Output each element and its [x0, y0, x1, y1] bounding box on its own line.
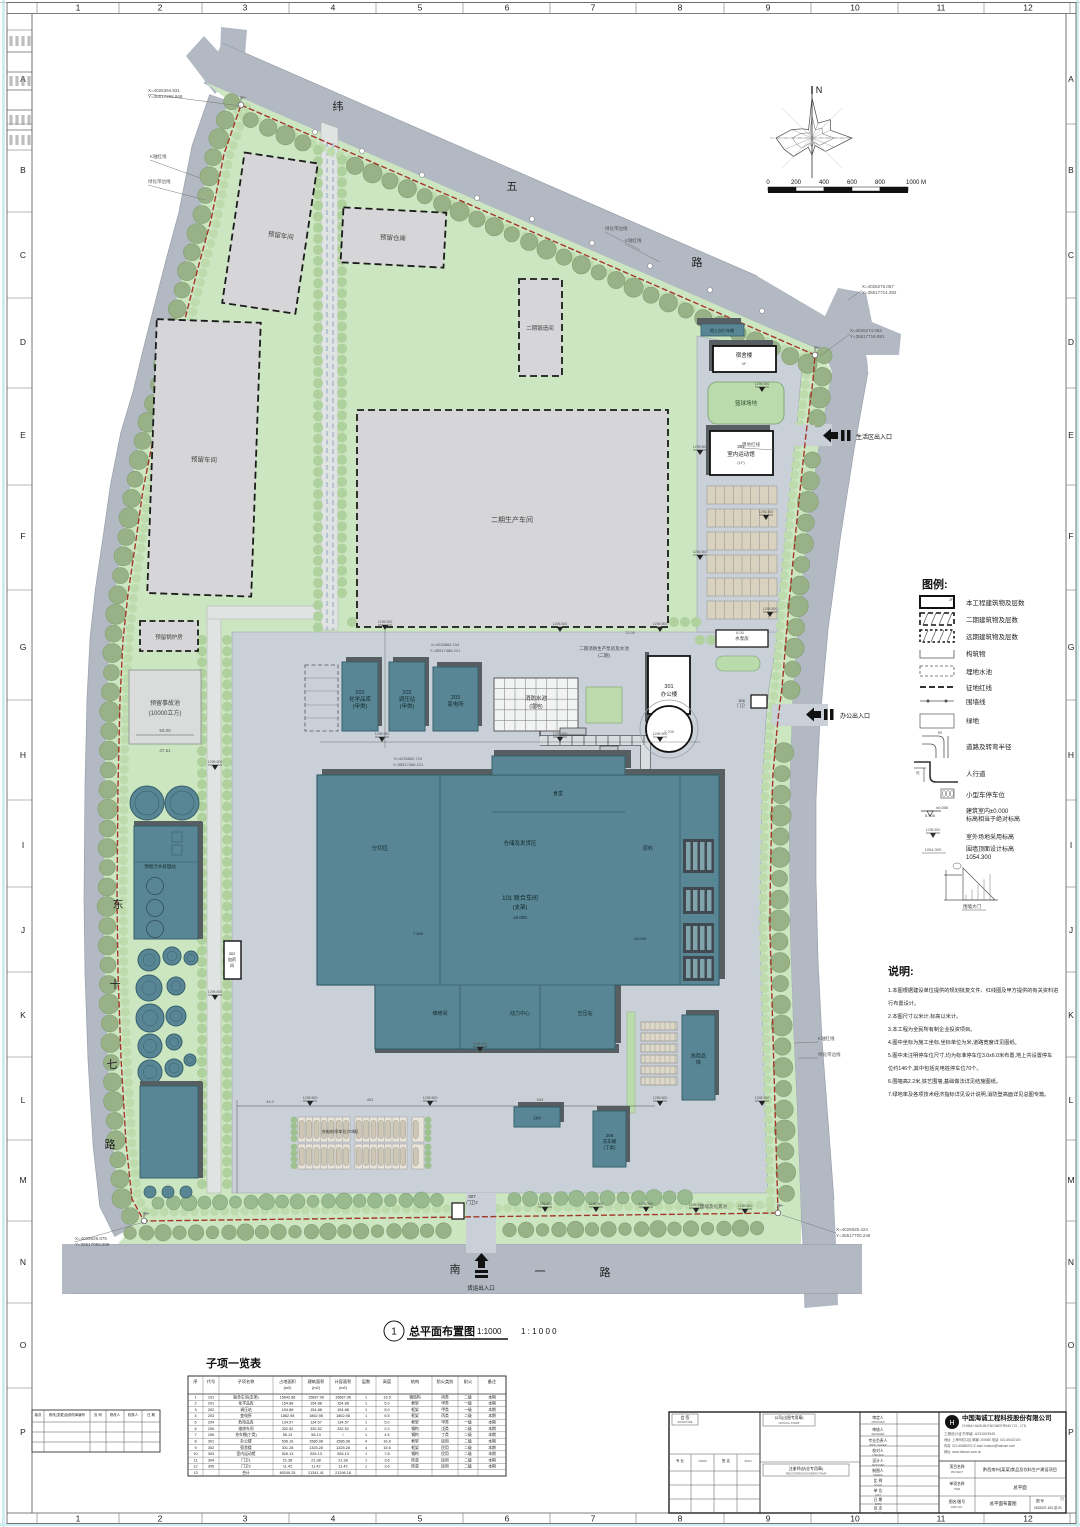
svg-text:403: 403 — [367, 1097, 374, 1102]
svg-text:制图人: 制图人 — [872, 1468, 884, 1473]
svg-text:101: 101 — [208, 1395, 214, 1399]
svg-text:备注: 备注 — [488, 1378, 497, 1385]
svg-text:总平面: 总平面 — [1013, 1484, 1027, 1491]
svg-text:134.57: 134.57 — [282, 1421, 294, 1425]
svg-text:调压站: 调压站 — [399, 695, 416, 703]
svg-text:日 期: 日 期 — [147, 1412, 155, 1417]
svg-text:B: B — [1068, 165, 1074, 175]
svg-text:(甲类): (甲类) — [400, 702, 415, 710]
svg-text:302: 302 — [208, 1446, 214, 1450]
svg-text:3.本工程为全民所有制企业投资项目。: 3.本工程为全民所有制企业投资项目。 — [888, 1025, 975, 1033]
svg-text:二期锻造间: 二期锻造间 — [526, 324, 554, 332]
svg-text:D: D — [20, 337, 26, 347]
svg-text:食堂: 食堂 — [553, 790, 563, 797]
svg-text:二级: 二级 — [464, 1464, 472, 1469]
svg-text:框架: 框架 — [411, 1413, 419, 1418]
svg-text:1295.500: 1295.500 — [538, 1202, 553, 1206]
svg-text:1295.500: 1295.500 — [693, 550, 708, 554]
svg-text:维修间: 维修间 — [432, 1010, 447, 1017]
svg-text:砖混: 砖混 — [411, 1464, 419, 1469]
svg-text:K: K — [1068, 1010, 1074, 1020]
svg-text:1: 1 — [365, 1452, 367, 1456]
svg-text:一级: 一级 — [464, 1401, 472, 1406]
svg-text:(埋地): (埋地) — [529, 703, 543, 710]
svg-text:8: 8 — [678, 1514, 683, 1524]
svg-text:4: 4 — [365, 1446, 367, 1450]
svg-text:21.38: 21.38 — [338, 1458, 348, 1462]
svg-text:1: 1 — [76, 3, 81, 13]
svg-text:1295.500: 1295.500 — [926, 828, 941, 832]
svg-text:路: 路 — [692, 256, 703, 269]
svg-text:7: 7 — [591, 3, 596, 13]
svg-text:戊类: 戊类 — [441, 1426, 449, 1431]
svg-text:合计: 合计 — [242, 1470, 250, 1475]
svg-text:(丁类): (丁类) — [604, 1144, 616, 1151]
svg-text:说明:: 说明: — [888, 964, 914, 978]
svg-text:调压站: 调压站 — [240, 1407, 252, 1412]
svg-text:审核人: 审核人 — [872, 1427, 884, 1432]
svg-text:地上自行车棚: 地上自行车棚 — [710, 327, 734, 333]
svg-text:12.000: 12.000 — [634, 936, 647, 941]
svg-text:原料: 原料 — [643, 845, 653, 852]
svg-text:预留锅炉房: 预留锅炉房 — [155, 633, 183, 641]
svg-text:J: J — [21, 925, 25, 935]
svg-text:1: 1 — [76, 1514, 81, 1524]
svg-text:维修车间: 维修车间 — [238, 1426, 253, 1431]
svg-text:1000 M: 1000 M — [906, 180, 926, 186]
svg-text:计容面积: 计容面积 — [335, 1378, 352, 1385]
svg-text:D: D — [1068, 337, 1074, 347]
svg-text:二级: 二级 — [464, 1394, 472, 1399]
svg-text:充车棚: 充车棚 — [603, 1138, 617, 1145]
svg-text:生活区出入口: 生活区出入口 — [856, 433, 892, 441]
svg-text:1295.500: 1295.500 — [759, 510, 774, 514]
svg-text:办公楼: 办公楼 — [240, 1438, 252, 1443]
svg-text:本期: 本期 — [488, 1438, 496, 1443]
svg-text:332.52: 332.52 — [310, 1427, 322, 1431]
svg-text:4: 4 — [331, 3, 336, 13]
svg-text:5: 5 — [194, 1421, 196, 1425]
svg-text:围墙顶面设计标高: 围墙顶面设计标高 — [966, 845, 1014, 853]
svg-text:534: 534 — [537, 1097, 544, 1102]
svg-text:1:1000: 1:1000 — [477, 1327, 502, 1336]
svg-text:Y=35517700.248: Y=35517700.248 — [836, 1233, 871, 1238]
svg-text:11.42: 11.42 — [338, 1465, 347, 1469]
svg-text:O: O — [20, 1340, 27, 1350]
svg-text:1: 1 — [365, 1408, 367, 1412]
svg-text:21298.18: 21298.18 — [335, 1471, 351, 1475]
svg-text:I: I — [1070, 840, 1072, 850]
svg-text:1: 1 — [365, 1465, 367, 1469]
svg-text:F: F — [1068, 531, 1073, 541]
svg-text:二级: 二级 — [464, 1445, 472, 1450]
svg-text:本期: 本期 — [488, 1401, 496, 1406]
svg-text:1: 1 — [365, 1433, 367, 1437]
svg-text:L: L — [21, 1095, 26, 1105]
svg-text:钢构: 钢构 — [411, 1426, 419, 1431]
svg-text:二级: 二级 — [464, 1451, 472, 1456]
svg-text:P: P — [20, 1427, 26, 1437]
svg-text:化学品库: 化学品库 — [349, 695, 372, 703]
svg-text:设计人: 设计人 — [872, 1458, 884, 1463]
svg-text:4: 4 — [331, 1514, 336, 1524]
svg-text:134.57: 134.57 — [310, 1421, 322, 1425]
svg-text:80249.25: 80249.25 — [280, 1471, 296, 1475]
svg-text:钢构: 钢构 — [411, 1432, 419, 1437]
svg-text:二级: 二级 — [464, 1438, 472, 1443]
svg-text:1295.500: 1295.500 — [738, 1204, 753, 1208]
svg-text:M: M — [1067, 1175, 1074, 1185]
svg-text:纬: 纬 — [333, 100, 344, 113]
svg-text:1: 1 — [194, 1395, 196, 1399]
svg-text:子项名称: 子项名称 — [238, 1378, 255, 1385]
svg-text:工程设计证书甲级: A231003949: 工程设计证书甲级: A231003949 — [944, 1431, 995, 1436]
svg-text:1295.500: 1295.500 — [473, 1042, 488, 1046]
svg-text:二期消防生产泵房及水池: 二期消防生产泵房及水池 — [579, 645, 629, 652]
svg-text:154.88: 154.88 — [282, 1402, 294, 1406]
svg-text:8: 8 — [678, 3, 683, 13]
svg-text:101 联合车间: 101 联合车间 — [502, 894, 538, 902]
svg-text:5: 5 — [418, 1514, 423, 1524]
svg-text:P: P — [1068, 1427, 1074, 1437]
svg-text:注册师(执业专用章): 注册师(执业专用章) — [789, 1465, 824, 1471]
svg-text:修改人: 修改人 — [110, 1412, 121, 1417]
svg-text:CHECKED: CHECKED — [872, 1454, 884, 1457]
svg-text:征地红线: 征地红线 — [966, 683, 993, 692]
svg-text:占地面积: 占地面积 — [279, 1378, 296, 1385]
svg-text:2: 2 — [158, 1514, 163, 1524]
svg-text:2: 2 — [194, 1402, 196, 1406]
svg-text:6.围墙高2.2米,铁艺围墙,基础做法详见结施图纸。: 6.围墙高2.2米,铁艺围墙,基础做法详见结施图纸。 — [888, 1077, 1001, 1085]
svg-text:1295.500: 1295.500 — [653, 622, 668, 626]
svg-text:7.8: 7.8 — [384, 1452, 389, 1456]
svg-text:56.13: 56.13 — [283, 1433, 293, 1437]
svg-text:332.52: 332.52 — [337, 1427, 349, 1431]
svg-text:B: B — [20, 165, 26, 175]
svg-text:X=4026274.052: X=4026274.052 — [850, 328, 882, 333]
svg-text:6.5: 6.5 — [384, 1414, 389, 1418]
svg-text:72.00: 72.00 — [625, 630, 636, 635]
svg-text:154.88: 154.88 — [337, 1402, 349, 1406]
svg-text:公司(出图专用章): 公司(出图专用章) — [774, 1415, 804, 1420]
svg-text:CHINA HAISUM ENGINEERING CO.,: CHINA HAISUM ENGINEERING CO., LTD. — [962, 1424, 1027, 1428]
svg-text:防火类别: 防火类别 — [437, 1378, 454, 1385]
svg-text:围墙线: 围墙线 — [966, 697, 986, 706]
svg-text:301: 301 — [208, 1439, 214, 1443]
svg-text:204: 204 — [208, 1421, 214, 1425]
svg-text:1295.500: 1295.500 — [639, 1202, 654, 1206]
svg-text:11: 11 — [937, 1514, 946, 1524]
svg-text:8: 8 — [194, 1439, 196, 1443]
svg-text:1 : 1 0 0 0: 1 : 1 0 0 0 — [521, 1327, 557, 1336]
svg-text:办公楼: 办公楼 — [661, 690, 678, 698]
svg-text:15642.86: 15642.86 — [280, 1395, 296, 1399]
svg-text:危险品: 危险品 — [691, 1053, 706, 1060]
svg-text:L: L — [1069, 1095, 1074, 1105]
svg-text:4.5: 4.5 — [384, 1433, 389, 1437]
svg-text:(m2): (m2) — [339, 1386, 348, 1390]
svg-text:民用: 民用 — [441, 1457, 449, 1462]
svg-text:G: G — [20, 642, 27, 652]
svg-text:X=4026276.057: X=4026276.057 — [862, 284, 894, 289]
svg-text:206: 206 — [208, 1433, 214, 1437]
svg-text:加药: 加药 — [228, 956, 236, 962]
svg-text:3.6: 3.6 — [384, 1465, 389, 1469]
svg-text:A: A — [1068, 74, 1074, 84]
svg-text:间: 间 — [230, 962, 234, 968]
svg-text:K轴红线: K轴红线 — [625, 237, 642, 244]
svg-text:中国海诚工程科技股份有限公司: 中国海诚工程科技股份有限公司 — [962, 1413, 1051, 1422]
svg-text:预留污水处理站: 预留污水处理站 — [144, 863, 176, 870]
svg-text:4: 4 — [194, 1414, 196, 1418]
svg-text:预留事故池: 预留事故池 — [150, 699, 180, 707]
svg-text:本期: 本期 — [488, 1457, 496, 1462]
svg-text:(m2): (m2) — [312, 1386, 321, 1390]
svg-text:位约146个,其中包括充电桩停车位70个。: 位约146个,其中包括充电桩停车位70个。 — [888, 1064, 982, 1072]
svg-text:框架: 框架 — [411, 1420, 419, 1425]
svg-text:4.图中坐标为施工坐标,坐标单位为米,道路宽度详见图纸。: 4.图中坐标为施工坐标,坐标单位为米,道路宽度详见图纸。 — [888, 1038, 1020, 1046]
svg-text:消防水池: 消防水池 — [525, 694, 548, 702]
svg-text:10: 10 — [850, 3, 860, 13]
svg-text:专 业: 专 业 — [676, 1458, 685, 1463]
svg-text:日 期: 日 期 — [874, 1497, 883, 1502]
svg-text:5.0: 5.0 — [384, 1402, 389, 1406]
svg-text:一级: 一级 — [464, 1420, 472, 1425]
svg-text:1: 1 — [391, 1327, 397, 1338]
svg-text:1295.500: 1295.500 — [653, 732, 668, 736]
svg-text:会 签: 会 签 — [680, 1414, 689, 1420]
svg-text:I: I — [22, 840, 24, 850]
svg-text:N: N — [1068, 1257, 1074, 1267]
svg-text:本期: 本期 — [488, 1413, 496, 1418]
svg-text:民用: 民用 — [441, 1464, 449, 1469]
svg-text:154.88: 154.88 — [310, 1408, 322, 1412]
svg-text:框架: 框架 — [411, 1445, 419, 1450]
svg-text:甲类: 甲类 — [441, 1401, 449, 1406]
svg-text:五: 五 — [507, 181, 518, 193]
svg-text:1295.500: 1295.500 — [303, 1096, 318, 1100]
svg-text:货运出入口: 货运出入口 — [467, 1284, 495, 1292]
svg-text:校核人: 校核人 — [128, 1412, 139, 1417]
svg-text:E: E — [1068, 430, 1074, 440]
svg-text:X=4025625.424: X=4025625.424 — [836, 1227, 868, 1232]
svg-text:400: 400 — [819, 180, 830, 186]
svg-text:15687.06: 15687.06 — [335, 1395, 351, 1399]
svg-text:构筑物: 构筑物 — [966, 649, 986, 658]
svg-text:11: 11 — [194, 1458, 198, 1462]
svg-text:二期生产车间: 二期生产车间 — [491, 515, 533, 524]
svg-text:二级: 二级 — [464, 1413, 472, 1418]
svg-text:1586.98: 1586.98 — [336, 1439, 350, 1443]
svg-text:Y=35517050.208: Y=35517050.208 — [75, 1242, 110, 1247]
svg-text:结构: 结构 — [411, 1378, 419, 1385]
svg-text:93.00: 93.00 — [159, 728, 171, 733]
svg-text:签 名: 签 名 — [722, 1458, 731, 1463]
svg-text:12: 12 — [1023, 1514, 1033, 1524]
svg-text:1325.28: 1325.28 — [309, 1446, 323, 1450]
svg-text:丙类: 丙类 — [441, 1394, 449, 1399]
svg-text:人行道: 人行道 — [966, 769, 986, 778]
svg-text:专业负责人: 专业负责人 — [869, 1438, 888, 1443]
svg-text:本期: 本期 — [488, 1420, 496, 1425]
svg-text:E: E — [20, 430, 26, 440]
svg-text:11.42: 11.42 — [311, 1465, 320, 1469]
svg-text:7.绿地率及各项技术经济指标详见设计说明,消防登高面详见总图: 7.绿地率及各项技术经济指标详见设计说明,消防登高面详见总图专篇。 — [888, 1090, 1049, 1098]
svg-text:Y=35517466.221: Y=35517466.221 — [393, 762, 424, 767]
svg-text:13: 13 — [193, 1471, 197, 1475]
svg-text:1295.500: 1295.500 — [589, 1202, 604, 1206]
svg-text:H: H — [1068, 750, 1074, 760]
svg-text:15687.06: 15687.06 — [308, 1395, 324, 1399]
svg-text:9: 9 — [766, 1514, 771, 1524]
svg-text:动力中心: 动力中心 — [510, 1010, 530, 1017]
svg-text:水泵房: 水泵房 — [735, 635, 749, 642]
svg-text:网址: www.haisum.com.cn: 网址: www.haisum.com.cn — [944, 1449, 981, 1454]
svg-text:201: 201 — [208, 1402, 214, 1406]
svg-text:J: J — [1069, 925, 1073, 935]
svg-text:宿舍楼: 宿舍楼 — [736, 351, 753, 359]
svg-text:X=4025628.875: X=4025628.875 — [75, 1236, 107, 1241]
svg-text:框架: 框架 — [411, 1407, 419, 1412]
svg-text:M: M — [19, 1175, 26, 1185]
svg-text:6: 6 — [194, 1427, 196, 1431]
svg-text:1295.500: 1295.500 — [755, 382, 770, 386]
svg-text:11.42: 11.42 — [283, 1465, 292, 1469]
svg-text:SIGN: SIGN — [744, 1459, 751, 1463]
svg-text:44.0: 44.0 — [266, 1099, 275, 1104]
svg-text:校对人: 校对人 — [872, 1448, 884, 1453]
svg-text:行布置设计。: 行布置设计。 — [888, 999, 919, 1007]
svg-text:205: 205 — [208, 1427, 214, 1431]
svg-text:305: 305 — [208, 1465, 214, 1469]
svg-text:门卫1: 门卫1 — [241, 1457, 251, 1462]
svg-text:室内运动馆: 室内运动馆 — [727, 450, 755, 458]
svg-text:2F: 2F — [949, 598, 953, 602]
svg-text:本期: 本期 — [488, 1426, 496, 1431]
svg-text:民用: 民用 — [441, 1451, 449, 1456]
svg-text:总平面布置图: 总平面布置图 — [409, 1324, 475, 1338]
svg-text:DRAWN: DRAWN — [874, 1474, 883, 1477]
svg-text:(甲类): (甲类) — [353, 702, 368, 710]
svg-text:本期: 本期 — [488, 1445, 496, 1450]
svg-text:O: O — [1068, 1340, 1075, 1350]
svg-text:民用: 民用 — [441, 1438, 449, 1443]
svg-text:1295.500: 1295.500 — [553, 732, 568, 736]
svg-text:远期建筑物及层数: 远期建筑物及层数 — [966, 632, 1019, 641]
svg-text:526.13: 526.13 — [282, 1452, 294, 1456]
svg-text:门卫2: 门卫2 — [466, 1199, 478, 1206]
svg-text:600: 600 — [847, 180, 858, 186]
svg-text:G: G — [1068, 642, 1075, 652]
svg-text:1: 1 — [365, 1458, 367, 1462]
svg-text:充车棚(丁类): 充车棚(丁类) — [235, 1432, 257, 1437]
svg-text:DESIGNED: DESIGNED — [872, 1464, 885, 1467]
svg-text:修改(变更)及修改单编号: 修改(变更)及修改单编号 — [49, 1412, 86, 1417]
svg-text:202: 202 — [208, 1408, 214, 1412]
svg-text:1.本图根据建设单位提供的规划批复文件、红线图及甲方提供的有: 1.本图根据建设单位提供的规划批复文件、红线图及甲方提供的有关资料进 — [888, 986, 1058, 994]
svg-text:1054.300: 1054.300 — [925, 847, 942, 852]
svg-text:室外场地采用标高: 室外场地采用标高 — [966, 833, 1014, 841]
svg-text:N: N — [816, 85, 823, 95]
svg-text:PAGE: PAGE — [875, 1512, 882, 1515]
svg-text:0622207-100-总-01: 0622207-100-总-01 — [1034, 1505, 1062, 1510]
svg-text:303: 303 — [208, 1452, 214, 1456]
svg-text:1295.500: 1295.500 — [378, 620, 393, 624]
svg-text:甲类: 甲类 — [441, 1420, 449, 1425]
svg-text:SIGNATURE: SIGNATURE — [678, 1420, 693, 1424]
svg-text:332.52: 332.52 — [282, 1427, 294, 1431]
svg-text:13.5: 13.5 — [383, 1395, 390, 1399]
svg-text:1325.28: 1325.28 — [336, 1446, 350, 1450]
svg-text:篮球场地: 篮球场地 — [735, 399, 758, 407]
svg-text:6.00: 6.00 — [736, 630, 745, 635]
svg-text:地址: 上海市虹口区 邮编: 200080 电话: 02: 地址: 上海市虹口区 邮编: 200080 电话: 021-65410100 — [944, 1437, 1021, 1442]
svg-text:302: 302 — [229, 951, 236, 956]
svg-text:5.900: 5.900 — [925, 813, 936, 818]
svg-text:1295.500: 1295.500 — [763, 607, 778, 611]
svg-text:800: 800 — [875, 180, 886, 186]
svg-text:OFFICIAL STAMP: OFFICIAL STAMP — [778, 1421, 799, 1425]
svg-text:路: 路 — [600, 1266, 611, 1279]
svg-text:黔西南州(某某)食品及饮料生产建设项目: 黔西南州(某某)食品及饮料生产建设项目 — [983, 1466, 1057, 1473]
svg-text:4: 4 — [365, 1439, 367, 1443]
svg-text:代号: 代号 — [207, 1378, 215, 1385]
svg-text:埋地水池: 埋地水池 — [966, 667, 993, 676]
svg-text:202: 202 — [402, 690, 411, 696]
svg-text:204: 204 — [533, 1115, 541, 1120]
svg-text:56.13: 56.13 — [311, 1433, 321, 1437]
svg-text:536.16: 536.16 — [282, 1439, 294, 1443]
svg-text:15.6: 15.6 — [383, 1446, 390, 1450]
svg-text:301: 301 — [664, 684, 673, 690]
svg-text:(10000立方): (10000立方) — [149, 709, 182, 717]
svg-text:一: 一 — [535, 1266, 546, 1278]
svg-text:H: H — [949, 1420, 954, 1427]
svg-text:1: 1 — [365, 1414, 367, 1418]
svg-text:二期建筑物及层数: 二期建筑物及层数 — [966, 615, 1019, 624]
svg-text:K: K — [20, 1010, 26, 1020]
svg-text:21341.41: 21341.41 — [308, 1471, 324, 1475]
svg-text:砼: 砼 — [916, 770, 920, 775]
svg-text:页 码: 页 码 — [94, 1412, 102, 1417]
svg-text:绿地: 绿地 — [966, 716, 980, 725]
svg-text:序: 序 — [193, 1378, 197, 1385]
svg-text:21.38: 21.38 — [311, 1458, 321, 1462]
svg-text:206: 206 — [606, 1133, 614, 1138]
svg-text:6: 6 — [505, 1514, 510, 1524]
svg-text:1295.500: 1295.500 — [208, 990, 223, 994]
svg-text:3: 3 — [243, 1514, 248, 1524]
svg-text:宿舍楼: 宿舍楼 — [240, 1445, 252, 1450]
svg-text:高度: 高度 — [383, 1378, 392, 1385]
svg-text:X=4235862.724: X=4235862.724 — [394, 756, 423, 761]
svg-text:室内运动馆: 室内运动馆 — [237, 1451, 256, 1456]
svg-text:标高相当于绝对标高: 标高相当于绝对标高 — [966, 815, 1020, 823]
svg-text:绿化带边线: 绿化带边线 — [605, 225, 628, 232]
svg-text:1295.500: 1295.500 — [553, 622, 568, 626]
svg-text:1295.500: 1295.500 — [755, 1096, 770, 1100]
svg-text:绿化带边线: 绿化带边线 — [148, 178, 171, 185]
svg-text:审定人: 审定人 — [872, 1415, 884, 1420]
svg-text:一级: 一级 — [464, 1407, 472, 1412]
svg-text:七: 七 — [107, 1058, 118, 1071]
svg-text:1862.98: 1862.98 — [309, 1414, 323, 1418]
svg-text:3: 3 — [194, 1408, 196, 1412]
svg-text:2: 2 — [158, 3, 163, 13]
svg-text:F: F — [20, 531, 25, 541]
svg-text:307: 307 — [468, 1194, 476, 1199]
svg-text:图例:: 图例: — [922, 577, 948, 591]
